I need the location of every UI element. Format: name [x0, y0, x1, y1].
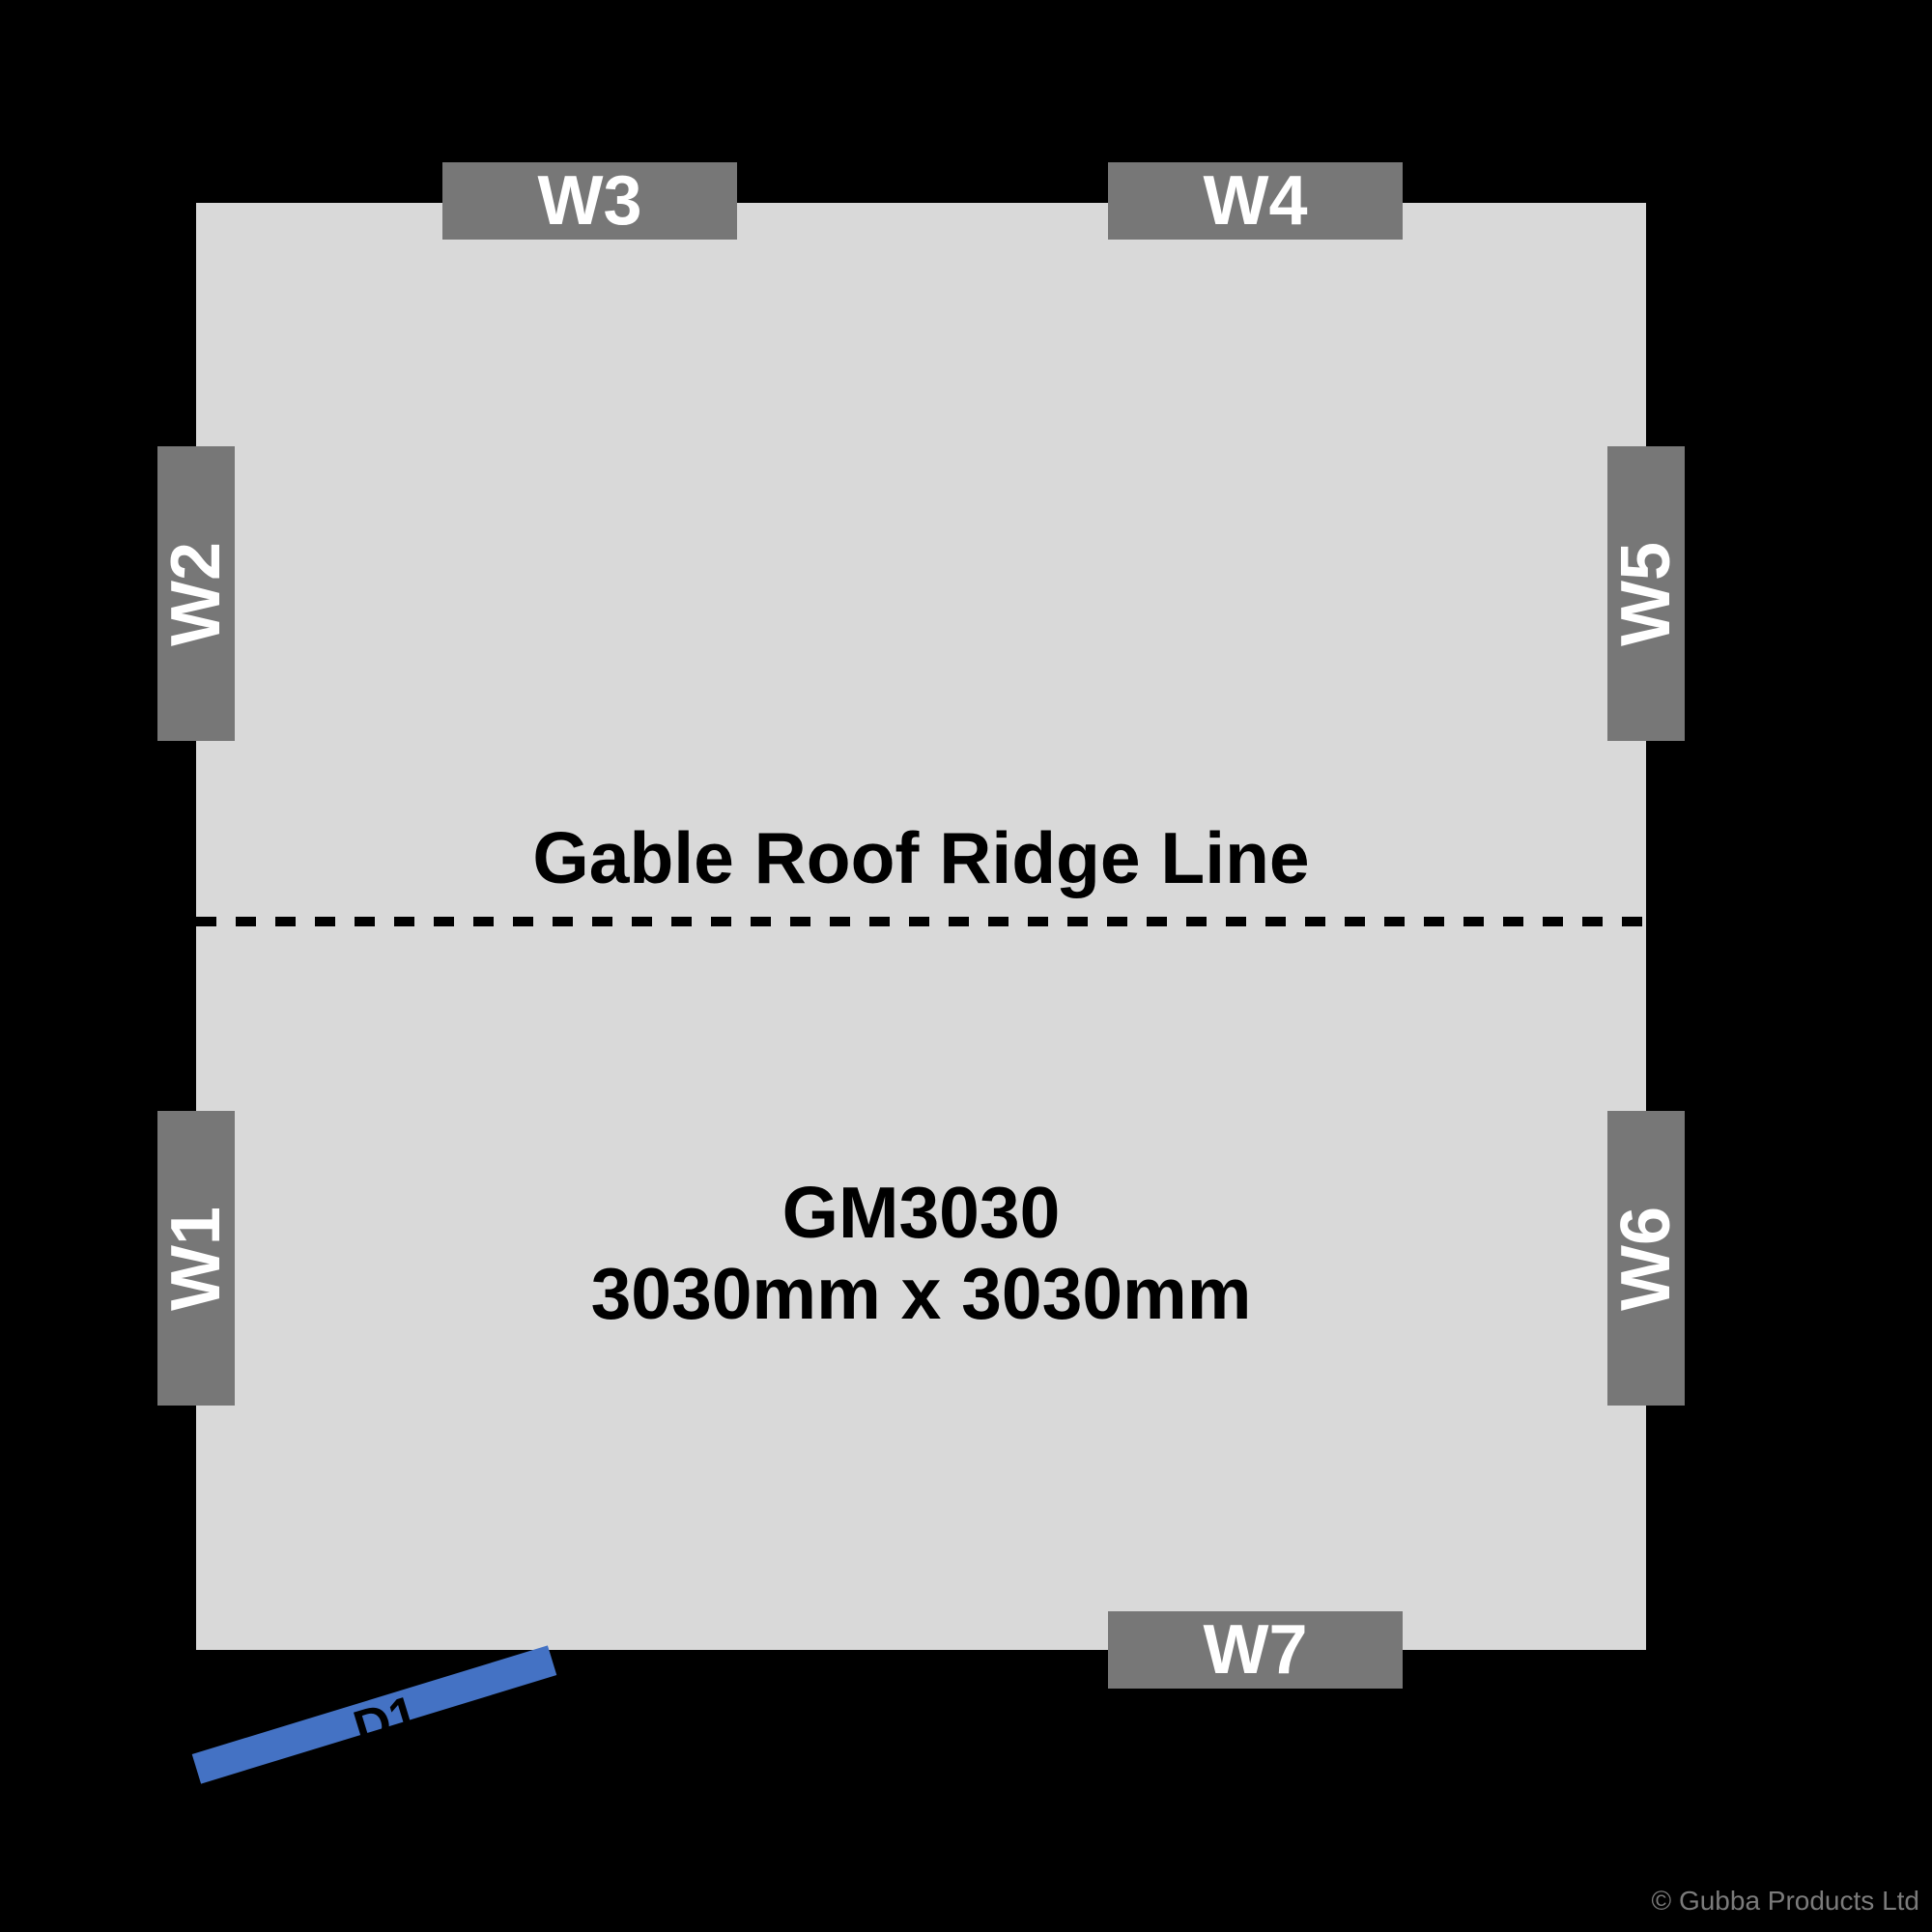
model-label: GM3030: [196, 1172, 1646, 1253]
window-label: W4: [1204, 166, 1308, 236]
window-label: W2: [161, 542, 231, 646]
window-label: W3: [538, 166, 642, 236]
window-marker-w4: W4: [1108, 162, 1403, 240]
window-label: W7: [1204, 1615, 1308, 1685]
window-marker-w2: W2: [157, 446, 235, 741]
model-info: GM3030 3030mm x 3030mm: [196, 1172, 1646, 1334]
window-label: W6: [1611, 1207, 1681, 1311]
door-label: D1: [313, 1674, 459, 1769]
window-label: W5: [1611, 542, 1681, 646]
window-marker-w5: W5: [1607, 446, 1685, 741]
diagram-canvas: { "colors": { "background": "#000000", "…: [0, 0, 1932, 1932]
window-marker-w1: W1: [157, 1111, 235, 1406]
window-label: W1: [161, 1207, 231, 1311]
dimensions-label: 3030mm x 3030mm: [196, 1253, 1646, 1334]
window-marker-w6: W6: [1607, 1111, 1685, 1406]
copyright-text: © Gubba Products Ltd: [1652, 1886, 1919, 1917]
ridge-line-label: Gable Roof Ridge Line: [196, 814, 1646, 901]
ridge-line: [196, 917, 1646, 926]
window-marker-w7: W7: [1108, 1611, 1403, 1689]
window-marker-w3: W3: [442, 162, 737, 240]
floor-plan-outline: [196, 203, 1646, 1650]
